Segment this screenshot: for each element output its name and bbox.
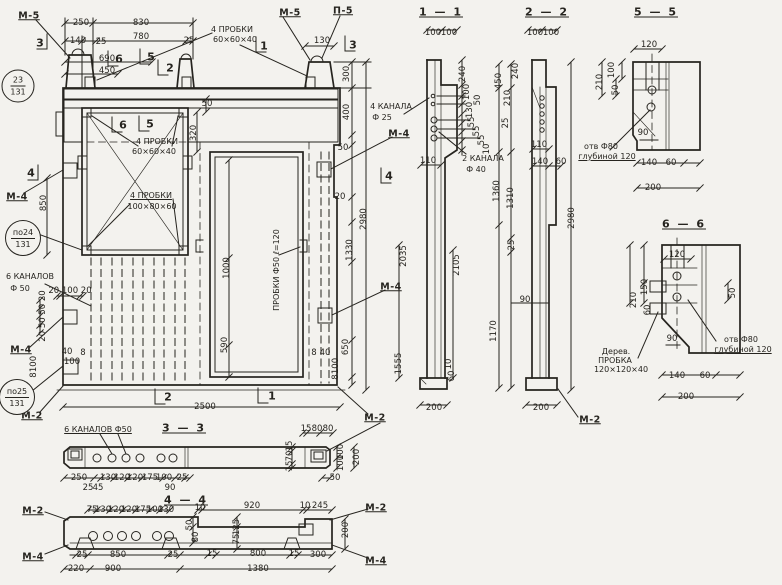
section-title-2-2: 2 — 2	[525, 7, 569, 18]
dim: 90	[520, 296, 531, 305]
position-mark-circle: 23131	[2, 70, 35, 103]
cut-marker-1-top: 1	[260, 41, 268, 52]
dim: 75	[233, 534, 242, 545]
labels-layer: 1 — 12 — 25 — 56 — 63 — 34 — 4М-5М-5П-5М…	[0, 0, 782, 585]
dim: 100	[441, 29, 457, 38]
dim: 10	[483, 144, 492, 155]
mark-p5: П-5	[333, 6, 353, 16]
position-mark-circle: по24131	[5, 220, 41, 256]
dim: 830	[133, 19, 149, 28]
dim: 120	[641, 41, 657, 50]
annotation-plugs-window: 4 ПРОБКИ	[136, 138, 178, 146]
dim: 800	[250, 550, 266, 559]
annotation-door-plugs: ПРОБКИ Ф50 ℓ=120	[273, 229, 281, 311]
mark-m5-left: М-5	[18, 11, 40, 21]
dim: 8	[332, 374, 341, 379]
annotation-plugs-top: 4 ПРОБКИ	[211, 26, 253, 34]
dim: 100	[425, 29, 441, 38]
dim: 210	[630, 292, 639, 308]
dim: 60	[666, 159, 677, 168]
mark-m4-left-lower: М-4	[10, 345, 32, 355]
annotation-hole-55: отв Ф80	[584, 143, 618, 151]
cut-marker-4-left: 4	[27, 168, 35, 179]
dim: 100	[64, 358, 80, 367]
dim: 850	[110, 551, 126, 560]
dim: 25	[177, 474, 188, 483]
dim: 210	[596, 74, 605, 90]
dim: 80	[192, 532, 201, 543]
dim: 100	[156, 474, 172, 483]
section-title-6-6: 6 — 6	[662, 219, 706, 230]
dim: 25	[168, 551, 179, 560]
dim: 20 100 20	[48, 287, 91, 296]
dim: 2980	[568, 207, 577, 229]
mark-m4-44-left: М-4	[22, 552, 44, 562]
dim: 10	[195, 504, 206, 513]
dim: 150	[641, 279, 650, 295]
dim: 320	[190, 125, 199, 141]
cut-marker-6-window: 6	[119, 120, 127, 131]
dim: 50	[338, 144, 349, 153]
dim: 25	[77, 551, 88, 560]
dim: 200	[533, 404, 549, 413]
dim: 1310	[507, 187, 516, 209]
annotation-6-channels: 6 КАНАЛОВ	[6, 273, 54, 281]
dim: 60	[556, 158, 567, 167]
dim: 100	[527, 29, 543, 38]
dim: 450	[99, 67, 115, 76]
dim: 140	[669, 372, 685, 381]
dim: 120	[127, 474, 143, 483]
dim: 80	[312, 425, 323, 434]
dim: 200	[645, 184, 661, 193]
dim: 90	[638, 129, 649, 138]
dim: 200	[426, 404, 442, 413]
dim: 130	[158, 506, 174, 515]
dim: 140	[70, 37, 86, 46]
position-mark-circle: по25131	[0, 379, 35, 415]
cut-marker-3-right: 3	[349, 40, 357, 51]
dim: 200	[342, 522, 351, 538]
mark-m2-section22: М-2	[579, 415, 601, 425]
dim: 120	[669, 251, 685, 260]
dim: 590	[221, 337, 230, 353]
dim: 10	[445, 359, 454, 370]
dim: 300	[310, 551, 326, 560]
dim: 250	[71, 474, 87, 483]
dim: 20 50 50 20	[39, 290, 48, 341]
cut-marker-2-bottom: 2	[164, 392, 172, 403]
dim: 15	[286, 461, 295, 472]
dim: 400	[343, 104, 352, 120]
dim: 8	[80, 349, 85, 358]
dim: 60	[700, 372, 711, 381]
dim: 300	[343, 66, 352, 82]
dim: 10	[300, 502, 311, 511]
dim: 90	[165, 484, 176, 493]
dim: 2035	[400, 245, 409, 267]
dim: 45	[93, 484, 104, 493]
dim: 50	[474, 95, 483, 106]
dim: 1170	[490, 320, 499, 342]
dim: 210	[504, 90, 513, 106]
dim: 50	[612, 85, 621, 96]
dim: 50	[186, 520, 195, 531]
dim: 110	[531, 141, 547, 150]
dim: 25	[96, 38, 107, 47]
dim: 50	[202, 100, 213, 109]
dim: 15	[207, 550, 218, 559]
dim: 200	[353, 449, 362, 465]
dim: 2105	[453, 254, 462, 276]
dim: 450	[495, 73, 504, 89]
dim: 245	[312, 502, 328, 511]
section-title-1-1: 1 — 1	[419, 7, 463, 18]
annotation-4-channels-dia: Ф 25	[372, 114, 392, 122]
cut-marker-2-top: 2	[166, 63, 174, 74]
mark-m4-left-upper: М-4	[6, 192, 28, 202]
annotation-4-channels: 4 КАНАЛА	[370, 103, 412, 111]
dim: 650	[342, 339, 351, 355]
annotation-plugs-100-size: 100×80×60	[127, 203, 176, 211]
section-title-5-5: 5 — 5	[634, 7, 678, 18]
mark-m4-44-right: М-4	[365, 556, 387, 566]
dim: 40	[320, 349, 331, 358]
dim: 220	[68, 565, 84, 574]
dim: 1360	[493, 180, 502, 202]
cut-marker-1-bottom: 1	[268, 391, 276, 402]
annotation-wood-plug-3: 120×120×40	[594, 366, 648, 374]
annotation-6-channels-33: 6 КАНАЛОВ Ф50	[64, 426, 132, 434]
dim: 250	[73, 19, 89, 28]
dim: 100	[608, 62, 617, 78]
cut-marker-5-top: 5	[147, 52, 155, 63]
blueprint-page: 1 — 12 — 25 — 56 — 63 — 34 — 4М-5М-5П-5М…	[0, 0, 782, 585]
dim: 140	[641, 159, 657, 168]
dim: 80	[323, 425, 334, 434]
annotation-6-channels-dia: Ф 50	[10, 285, 30, 293]
dim: 100	[543, 29, 559, 38]
mark-m4-right-lower: М-4	[380, 282, 402, 292]
dim: 8	[311, 349, 316, 358]
dim: 25	[508, 240, 517, 251]
annotation-2-channels: 2 КАНАЛА	[462, 155, 504, 163]
section-title-3-3: 3 — 3	[162, 423, 206, 434]
annotation-plugs-window-size: 60×60×40	[132, 148, 176, 156]
dim: 60	[448, 371, 457, 382]
dim: 690	[99, 55, 115, 64]
dim: 40	[62, 348, 73, 357]
annotation-wood-plug-1: Дерев.	[602, 348, 630, 356]
dim: 110	[420, 157, 436, 166]
dim: 130	[314, 37, 330, 46]
dim: 25	[184, 37, 195, 46]
dim: 100	[463, 84, 472, 100]
dim: 8	[30, 372, 39, 377]
cut-marker-3-left: 3	[36, 38, 44, 49]
annotation-plugs-100: 4 ПРОБКИ	[130, 192, 172, 200]
mark-m4-right-upper: М-4	[388, 129, 410, 139]
dim: 2980	[360, 208, 369, 230]
mark-m2-right: М-2	[364, 413, 386, 423]
dim: 100	[332, 358, 341, 374]
dim: 15	[395, 364, 404, 375]
dim: 50	[330, 474, 341, 483]
dim: 50	[729, 288, 738, 299]
mark-m2-44-left: М-2	[22, 506, 44, 516]
annotation-plugs-top-size: 60×60×40	[213, 36, 257, 44]
dim: 90	[667, 335, 678, 344]
annotation-hole-66-depth: глубиной 120	[714, 346, 771, 354]
dim: 20	[335, 193, 346, 202]
dim: 140	[532, 158, 548, 167]
dim: 100	[337, 455, 346, 471]
dim: 1000	[223, 257, 232, 279]
dim: 25	[502, 118, 511, 129]
annotation-2-channels-dia: Ф 40	[466, 166, 486, 174]
dim: 850	[40, 195, 49, 211]
dim: 55	[395, 353, 404, 364]
dim: 2500	[194, 403, 216, 412]
dim: 240	[512, 63, 521, 79]
dim: 1380	[247, 565, 269, 574]
dim: 900	[105, 565, 121, 574]
cut-marker-4-right: 4	[385, 171, 393, 182]
dim: 1330	[346, 239, 355, 261]
mark-m2-44-right: М-2	[365, 503, 387, 513]
cut-marker-6-top: 6	[115, 54, 123, 65]
dim: 60	[644, 305, 653, 316]
dim: 920	[244, 502, 260, 511]
annotation-hole-66: отв Ф80	[724, 336, 758, 344]
dim: 15	[301, 425, 312, 434]
dim: 780	[133, 33, 149, 42]
dim: 240	[459, 66, 468, 82]
dim: 200	[678, 393, 694, 402]
dim: 15	[289, 550, 300, 559]
dim: 100	[30, 356, 39, 372]
mark-m5-mid: М-5	[279, 8, 301, 18]
annotation-wood-plug-2: ПРОБКА	[598, 357, 632, 365]
annotation-hole-55-depth: глубиной 120	[578, 153, 635, 161]
cut-marker-5-window: 5	[146, 119, 154, 130]
